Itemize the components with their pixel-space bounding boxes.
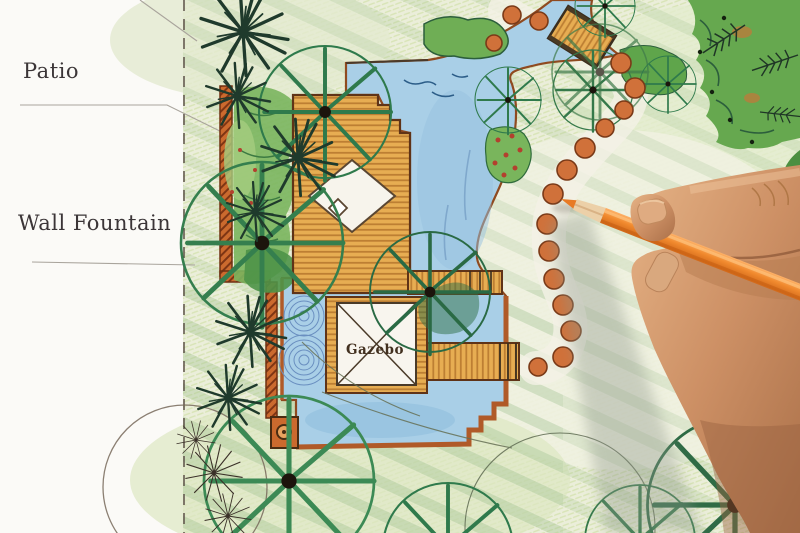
patio-label: Patio bbox=[23, 59, 79, 83]
gazebo-label: Gazebo bbox=[346, 342, 404, 358]
wall-fountain-label: Wall Fountain bbox=[18, 211, 171, 235]
corner-planter bbox=[271, 417, 298, 448]
photo-of-landscape-plan: Patio Wall Fountain Gazebo bbox=[0, 0, 800, 533]
gazebo-boardwalk bbox=[425, 343, 519, 380]
plan-drawing bbox=[0, 0, 800, 533]
